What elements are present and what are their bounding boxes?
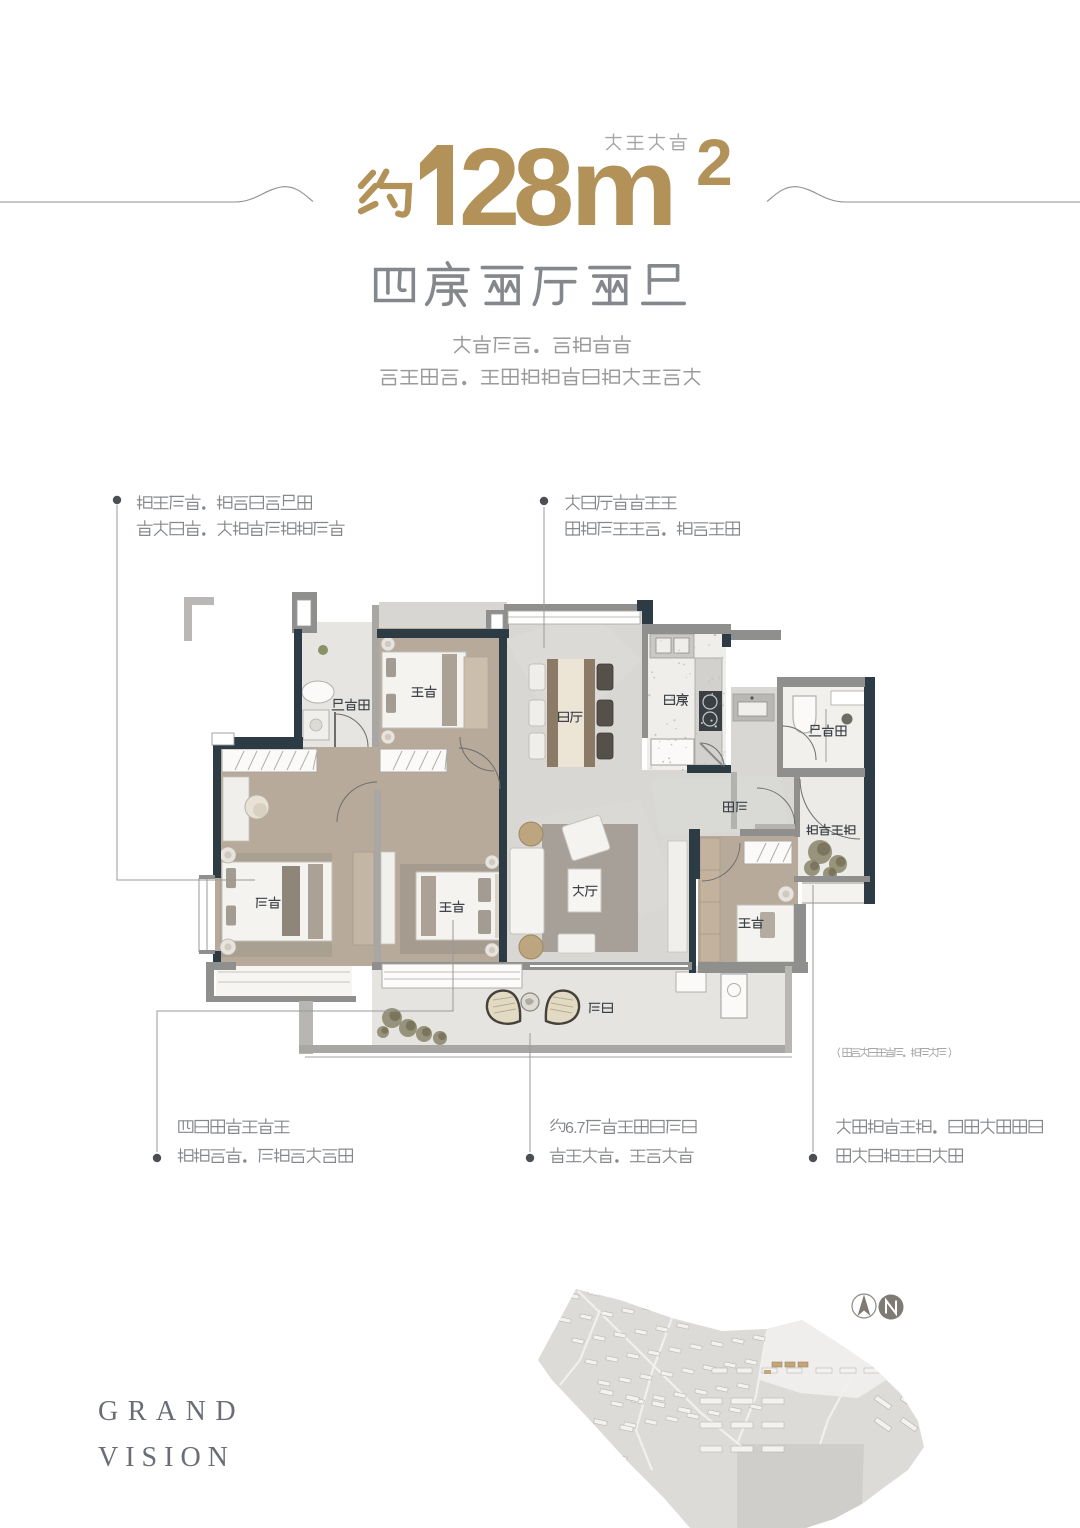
- svg-text:7: 7: [577, 1119, 586, 1137]
- svg-text:GRAND: GRAND: [98, 1396, 245, 1427]
- svg-text:8: 8: [513, 126, 574, 249]
- svg-text:VISION: VISION: [98, 1442, 235, 1473]
- svg-text:2: 2: [696, 125, 733, 199]
- svg-text:m: m: [570, 126, 678, 249]
- svg-text:2: 2: [459, 126, 520, 249]
